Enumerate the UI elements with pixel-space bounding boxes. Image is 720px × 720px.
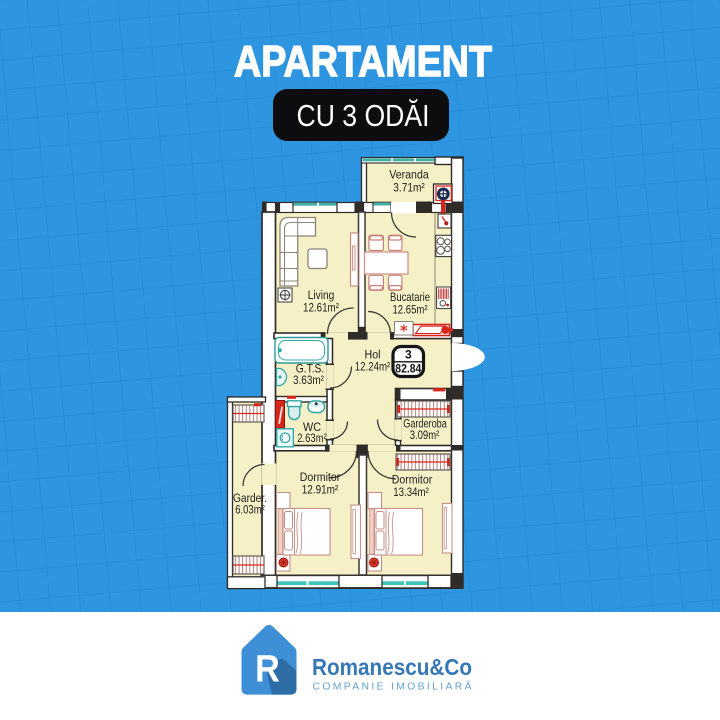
svg-text:Veranda: Veranda bbox=[389, 168, 429, 182]
svg-text:CU 3 ODĂI: CU 3 ODĂI bbox=[297, 98, 430, 133]
svg-text:3.63m²: 3.63m² bbox=[293, 373, 324, 387]
svg-text:3.71m²: 3.71m² bbox=[393, 181, 425, 195]
svg-text:R: R bbox=[255, 647, 280, 690]
svg-text:COMPANIE IMOBILIARĂ: COMPANIE IMOBILIARĂ bbox=[313, 680, 472, 693]
svg-text:12.61m²: 12.61m² bbox=[303, 301, 339, 315]
svg-text:APARTAMENT: APARTAMENT bbox=[234, 37, 492, 86]
svg-text:12.91m²: 12.91m² bbox=[302, 483, 339, 497]
svg-text:Romanescu&Co: Romanescu&Co bbox=[312, 654, 472, 680]
svg-text:12.24m²: 12.24m² bbox=[355, 360, 391, 374]
svg-text:13.34m²: 13.34m² bbox=[393, 485, 429, 499]
svg-text:6.03m²: 6.03m² bbox=[235, 503, 265, 517]
svg-text:2.63m²: 2.63m² bbox=[297, 431, 327, 445]
svg-text:3: 3 bbox=[405, 348, 412, 362]
svg-text:12.65m²: 12.65m² bbox=[393, 303, 428, 317]
svg-text:3.09m²: 3.09m² bbox=[410, 428, 440, 442]
svg-text:82.84: 82.84 bbox=[395, 362, 421, 376]
